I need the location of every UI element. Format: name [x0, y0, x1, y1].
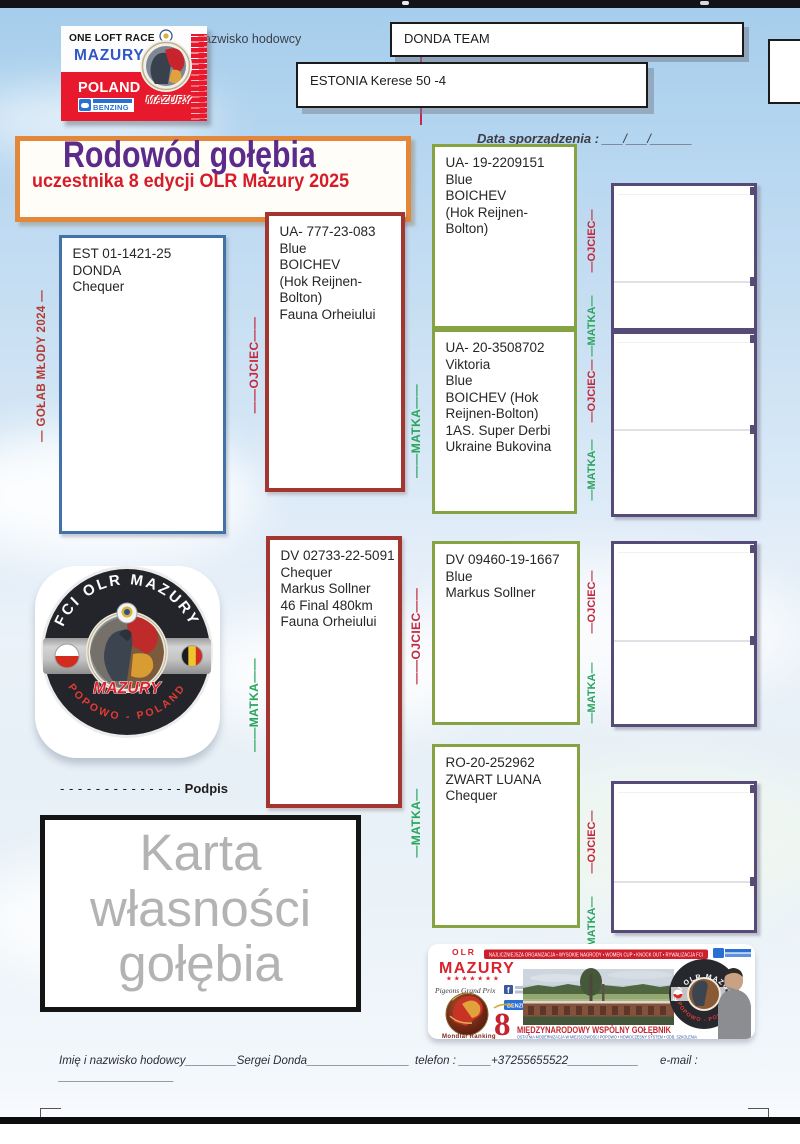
svg-text:MAZURY: MAZURY	[439, 960, 515, 977]
svg-text:f: f	[507, 986, 510, 995]
svg-text:OLR: OLR	[452, 947, 476, 957]
svg-text:8: 8	[494, 1007, 511, 1039]
svg-text:Mondial Ranking: Mondial Ranking	[442, 1034, 496, 1039]
svg-text:MAZURY: MAZURY	[93, 680, 162, 697]
svg-text:NAJLICZNIEJSZA ORGANIZACJA • W: NAJLICZNIEJSZA ORGANIZACJA • WYSOKIE NAG…	[489, 953, 703, 959]
svg-text:★★★★★★★: ★★★★★★★	[446, 975, 501, 983]
